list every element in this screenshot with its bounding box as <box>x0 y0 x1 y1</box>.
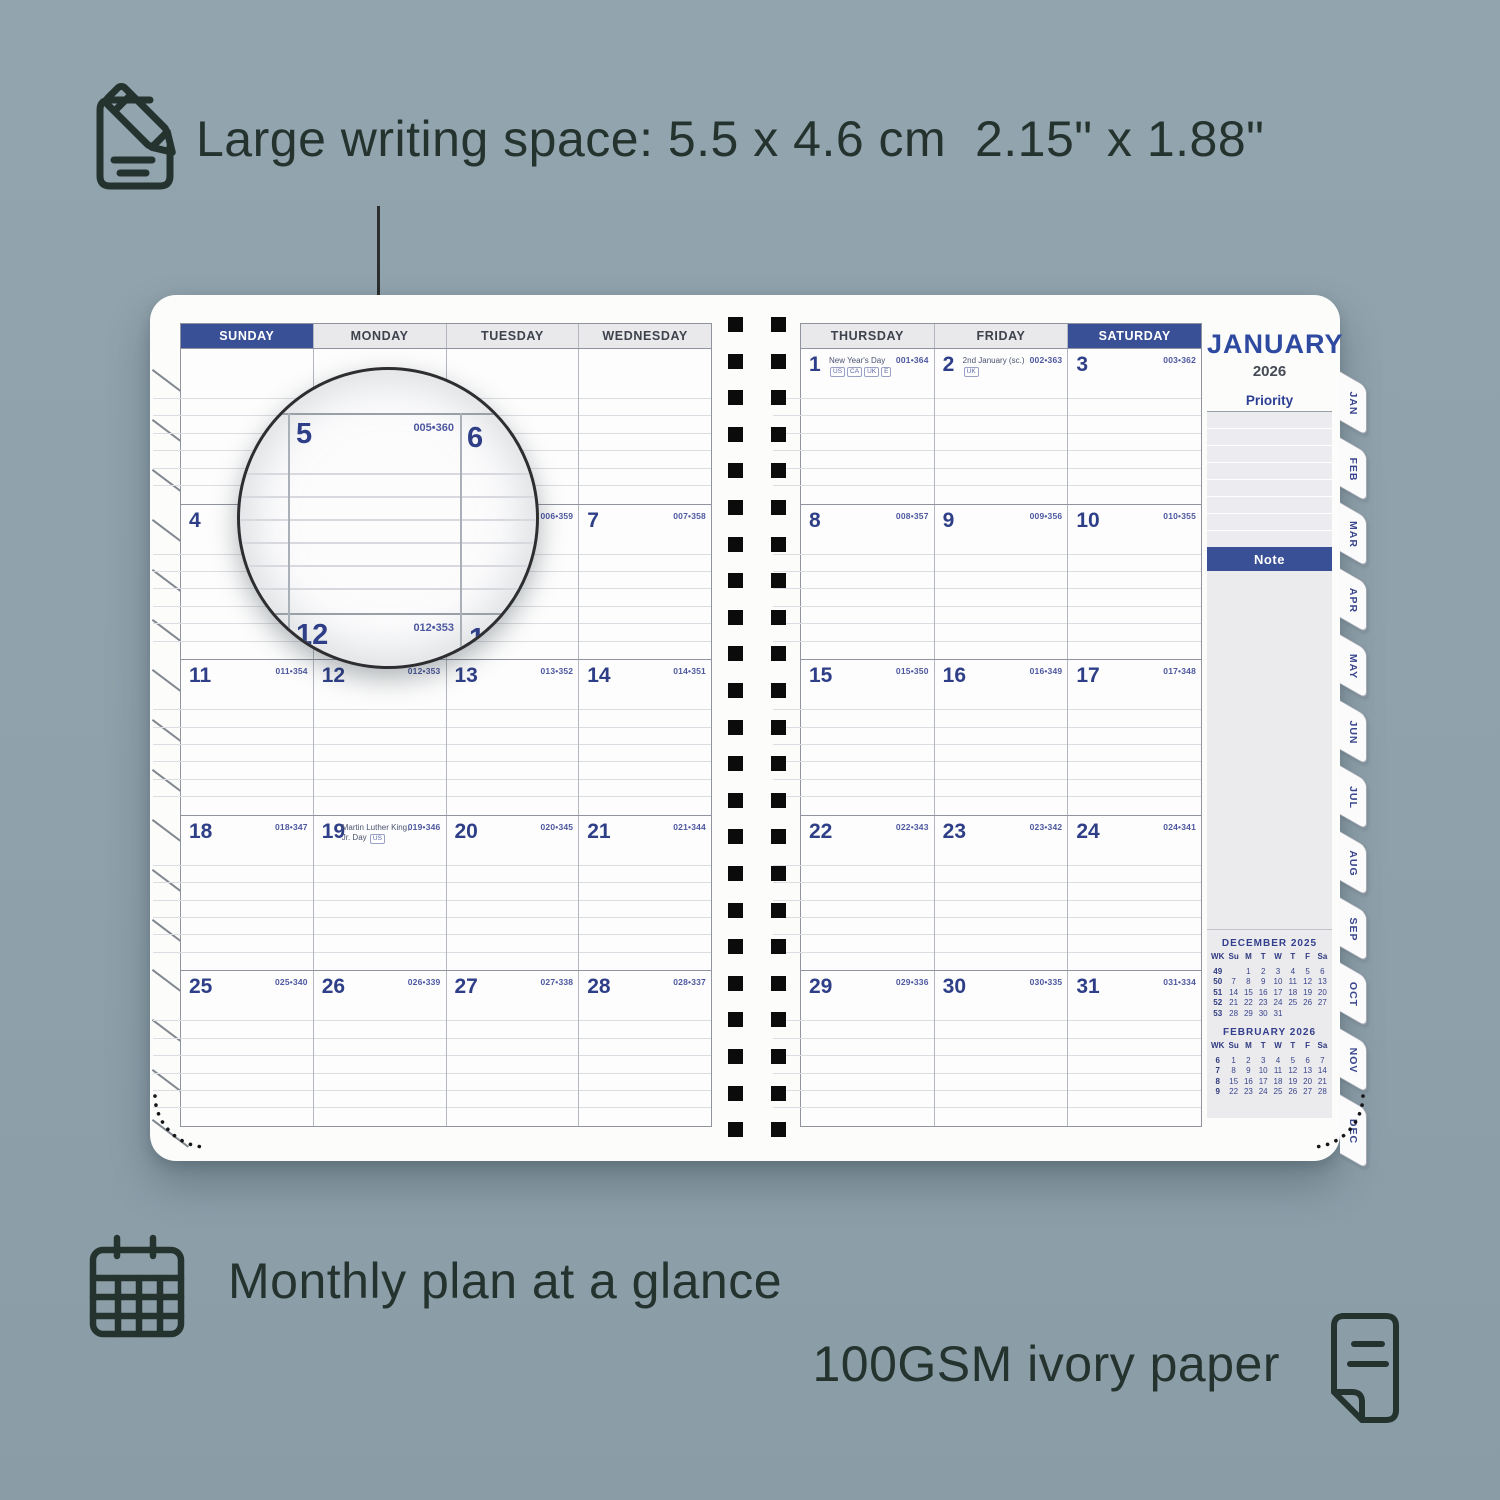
dotted-corner-left <box>150 1093 210 1153</box>
day-number: 16 <box>943 664 966 688</box>
mini-calendar-day: 25 <box>1285 998 1300 1009</box>
day-number: 14 <box>587 664 610 688</box>
binding-hole <box>771 1122 786 1137</box>
mini-calendar-day: 3 <box>1256 1056 1271 1067</box>
weekday-header-monday: MONDAY <box>313 324 446 348</box>
mini-calendars: DECEMBER 2025WKSuMTWTFSa4912345650789101… <box>1207 929 1332 1098</box>
binding-hole <box>728 537 743 552</box>
mini-calendar-day: 6 <box>1300 1056 1315 1067</box>
week-row: 8008•3579009•35610010•355 <box>801 504 1201 660</box>
day-number: 28 <box>587 975 610 999</box>
week-number: 53 <box>1209 1009 1226 1020</box>
day-number: 1 <box>809 353 821 377</box>
binding-hole <box>771 1049 786 1064</box>
mini-calendar-day: 4 <box>1271 1056 1286 1067</box>
month-tab-label: APR <box>1329 588 1377 614</box>
mini-calendar-day: 13 <box>1315 977 1330 988</box>
day-code: 027•338 <box>541 977 574 987</box>
month-tab-oct: OCT <box>1340 962 1367 1028</box>
day-cell-29: 29029•336 <box>801 971 934 1126</box>
day-code: 025•340 <box>275 977 308 987</box>
mini-calendar-day: 10 <box>1256 1066 1271 1077</box>
day-number: 25 <box>189 975 212 999</box>
binding-hole <box>728 427 743 442</box>
mini-calendar-day: 20 <box>1315 988 1330 999</box>
mini-calendar-grid: WKSuMTWTFSa49123456507891011121351141516… <box>1207 952 1332 1019</box>
mini-calendar-day <box>1315 1009 1330 1020</box>
day-cell-3: 3003•362 <box>1067 349 1201 504</box>
note-panel: DECEMBER 2025WKSuMTWTFSa4912345650789101… <box>1207 571 1332 1118</box>
magnified-code-12: 012•353 <box>370 622 454 634</box>
week-number: 51 <box>1209 988 1226 999</box>
day-code: 009•356 <box>1030 511 1063 521</box>
day-cell-17: 17017•348 <box>1067 660 1201 815</box>
day-number: 7 <box>587 509 599 533</box>
holiday-region-badge: US <box>370 834 385 844</box>
week-number: 8 <box>1209 1077 1226 1088</box>
day-cell-28: 28028•337 <box>578 971 711 1126</box>
month-tab-label: JAN <box>1329 391 1377 417</box>
magnifier-circle: 5 005•360 6 12 012•353 13 <box>237 367 539 669</box>
day-code: 020•345 <box>541 822 574 832</box>
binding-hole <box>771 1086 786 1101</box>
holiday-label: New Year's Day USCAUKE <box>829 356 903 377</box>
day-cell-20: 20020•345 <box>446 816 579 971</box>
binding-hole <box>771 903 786 918</box>
mini-calendar-day: 11 <box>1271 1066 1286 1077</box>
binding-hole <box>728 463 743 478</box>
feature-monthly-plan: Monthly plan at a glance <box>228 1252 782 1310</box>
mini-calendar-day: 28 <box>1226 1009 1241 1020</box>
day-code: 029•336 <box>896 977 929 987</box>
day-code: 031•334 <box>1163 977 1196 987</box>
mini-calendar-day: 9 <box>1256 977 1271 988</box>
binding-hole <box>728 390 743 405</box>
mini-calendar-day: 19 <box>1285 1077 1300 1088</box>
mini-calendar-weekday: Sa <box>1315 1041 1330 1052</box>
mini-calendar-day: 5 <box>1300 967 1315 978</box>
week-row: 15015•35016016•34917017•348 <box>801 659 1201 815</box>
binding-hole <box>728 793 743 808</box>
mini-calendar-day: 19 <box>1300 988 1315 999</box>
mini-calendar-day: 6 <box>1315 967 1330 978</box>
binding-hole <box>771 646 786 661</box>
day-number: 8 <box>809 509 821 533</box>
month-tab-feb: FEB <box>1340 437 1367 503</box>
mini-calendar-day <box>1285 1009 1300 1020</box>
day-cell-31: 31031•334 <box>1067 971 1201 1126</box>
day-cell-30: 30030•335 <box>934 971 1068 1126</box>
mini-calendar-day: 7 <box>1226 977 1241 988</box>
binding-hole <box>728 317 743 332</box>
week-number: 50 <box>1209 977 1226 988</box>
day-cell-16: 16016•349 <box>934 660 1068 815</box>
mini-calendar-day: 31 <box>1271 1009 1286 1020</box>
day-cell-10: 10010•355 <box>1067 505 1201 660</box>
binding-hole <box>771 610 786 625</box>
mini-calendar-weekday: F <box>1300 1041 1315 1052</box>
product-image: Large writing space: 5.5 x 4.6 cm 2.15" … <box>0 0 1500 1500</box>
right-page-grid: THURSDAYFRIDAYSATURDAY 1001•364New Year'… <box>800 323 1202 1127</box>
dotted-corner-right <box>1308 1093 1368 1153</box>
mini-calendar-weekday: T <box>1285 952 1300 963</box>
day-number: 31 <box>1076 975 1099 999</box>
mini-calendar-day: 21 <box>1226 998 1241 1009</box>
binding-hole <box>728 1086 743 1101</box>
mini-calendar-day: 4 <box>1285 967 1300 978</box>
week-row: 25025•34026026•33927027•33828028•337 <box>181 970 711 1126</box>
mini-calendar-day: 18 <box>1271 1077 1286 1088</box>
month-tab-label: MAR <box>1329 522 1377 548</box>
binding-hole <box>771 463 786 478</box>
weekday-header-tuesday: TUESDAY <box>446 324 579 348</box>
mini-calendar-day: 3 <box>1271 967 1286 978</box>
mini-calendar-day: 26 <box>1300 998 1315 1009</box>
mini-calendar-day: 2 <box>1256 967 1271 978</box>
day-number: 13 <box>455 664 478 688</box>
month-tab-jul: JUL <box>1340 765 1367 831</box>
binding-hole <box>728 573 743 588</box>
day-cell-14: 14014•351 <box>578 660 711 815</box>
weekday-header-row: SUNDAYMONDAYTUESDAYWEDNESDAY <box>181 324 711 349</box>
weekday-header-wednesday: WEDNESDAY <box>578 324 711 348</box>
mini-calendar-day <box>1226 967 1241 978</box>
month-tab-label: NOV <box>1329 1048 1377 1074</box>
mini-calendar-weekday: M <box>1241 952 1256 963</box>
binding-hole <box>728 1122 743 1137</box>
month-tab-nov: NOV <box>1340 1028 1367 1094</box>
binding-hole <box>728 903 743 918</box>
mini-calendar-weekday: F <box>1300 952 1315 963</box>
week-number: 49 <box>1209 967 1226 978</box>
mini-calendar-day: 20 <box>1300 1077 1315 1088</box>
mini-calendar-day <box>1300 1009 1315 1020</box>
day-code: 017•348 <box>1163 666 1196 676</box>
mini-calendar-day: 15 <box>1241 988 1256 999</box>
day-code: 008•357 <box>896 511 929 521</box>
day-number: 4 <box>189 509 201 533</box>
binding-hole <box>771 756 786 771</box>
week-row: 22022•34323023•34224024•341 <box>801 815 1201 971</box>
day-cell-27: 27027•338 <box>446 971 579 1126</box>
day-number: 23 <box>943 820 966 844</box>
month-tab-label: JUL <box>1329 785 1377 811</box>
month-tab-mar: MAR <box>1340 502 1367 568</box>
calendar-grid-icon <box>85 1232 189 1338</box>
day-code: 015•350 <box>896 666 929 676</box>
day-number: 15 <box>809 664 832 688</box>
feature-paper: 100GSM ivory paper <box>700 1335 1280 1393</box>
mini-calendar-day: 24 <box>1271 998 1286 1009</box>
day-cell-7: 7007•358 <box>578 505 711 660</box>
mini-calendar-title: DECEMBER 2025 <box>1207 938 1332 949</box>
note-heading: Note <box>1207 547 1332 571</box>
holiday-label: 2nd January (sc.) UK <box>963 356 1037 377</box>
day-code: 010•355 <box>1163 511 1196 521</box>
binding-hole <box>771 500 786 515</box>
binding-hole <box>771 939 786 954</box>
mini-calendar-day: 24 <box>1256 1087 1271 1098</box>
day-code: 021•344 <box>673 822 706 832</box>
mini-calendar-weekday: T <box>1256 952 1271 963</box>
day-cell-23: 23023•342 <box>934 816 1068 971</box>
binding-hole <box>728 500 743 515</box>
day-code: 018•347 <box>275 822 308 832</box>
day-code: 024•341 <box>1163 822 1196 832</box>
magnified-day-5: 5 <box>296 418 312 451</box>
mini-calendar-weekday: Sa <box>1315 952 1330 963</box>
day-cell-1: 1001•364New Year's Day USCAUKE <box>801 349 934 504</box>
holiday-region-badge: US <box>830 367 845 377</box>
day-cell-26: 26026•339 <box>313 971 446 1126</box>
mini-calendar-day: 23 <box>1241 1087 1256 1098</box>
day-code: 013•352 <box>541 666 574 676</box>
week-row: 18018•34719019•346Martin Luther King, Jr… <box>181 815 711 971</box>
binding-hole <box>728 866 743 881</box>
mini-calendar-day: 8 <box>1241 977 1256 988</box>
binding-hole <box>728 610 743 625</box>
day-number: 9 <box>943 509 955 533</box>
binding-hole <box>728 683 743 698</box>
binding-hole <box>728 976 743 991</box>
mini-calendar-day: 30 <box>1256 1009 1271 1020</box>
mini-calendar-weekday: M <box>1241 1041 1256 1052</box>
paper-sheet-icon <box>1320 1308 1410 1428</box>
binding-hole <box>771 720 786 735</box>
day-cell-11: 11011•354 <box>181 660 313 815</box>
mini-calendar-weekday: WK <box>1209 952 1226 963</box>
day-number: 17 <box>1076 664 1099 688</box>
day-code: 006•359 <box>541 511 574 521</box>
weekday-header-friday: FRIDAY <box>934 324 1068 348</box>
mini-calendar-day: 10 <box>1271 977 1286 988</box>
holiday-label: Martin Luther King, Jr. Day US <box>342 823 416 844</box>
day-cell-15: 15015•350 <box>801 660 934 815</box>
binding-hole <box>771 573 786 588</box>
day-number: 22 <box>809 820 832 844</box>
mini-calendar-day: 14 <box>1226 988 1241 999</box>
mini-calendar-day: 16 <box>1241 1077 1256 1088</box>
week-number: 7 <box>1209 1066 1226 1077</box>
holiday-region-badge: UK <box>864 367 879 377</box>
month-title: JANUARY <box>1207 329 1332 360</box>
mini-calendar-weekday: Su <box>1226 952 1241 963</box>
day-code: 022•343 <box>896 822 929 832</box>
month-tab-label: AUG <box>1329 850 1377 876</box>
binding-hole <box>771 354 786 369</box>
mini-calendar-day: 22 <box>1241 998 1256 1009</box>
day-number: 24 <box>1076 820 1099 844</box>
magnified-day-6: 6 <box>467 422 483 455</box>
binding-hole <box>771 829 786 844</box>
holiday-region-badge: UK <box>964 367 979 377</box>
magnified-day-12: 12 <box>296 619 328 652</box>
weekday-header-thursday: THURSDAY <box>801 324 934 348</box>
day-number: 18 <box>189 820 212 844</box>
binding-hole <box>728 354 743 369</box>
mini-calendar-day: 21 <box>1315 1077 1330 1088</box>
week-number: 52 <box>1209 998 1226 1009</box>
binding-hole <box>728 720 743 735</box>
day-cell-empty <box>578 349 711 504</box>
mini-calendar-day: 7 <box>1315 1056 1330 1067</box>
day-number: 11 <box>189 664 211 688</box>
week-number: 6 <box>1209 1056 1226 1067</box>
day-cell-24: 24024•341 <box>1067 816 1201 971</box>
day-number: 21 <box>587 820 610 844</box>
mini-calendar-day: 1 <box>1241 967 1256 978</box>
mini-calendar-day: 5 <box>1285 1056 1300 1067</box>
mini-calendar-day: 11 <box>1285 977 1300 988</box>
month-tab-sep: SEP <box>1340 897 1367 963</box>
day-number: 27 <box>455 975 478 999</box>
mini-calendar-day: 8 <box>1226 1066 1241 1077</box>
day-number: 12 <box>322 664 345 688</box>
day-cell-12: 12012•353 <box>313 660 446 815</box>
day-code: 026•339 <box>408 977 441 987</box>
priority-heading: Priority <box>1207 393 1332 408</box>
mini-calendar-day: 15 <box>1226 1077 1241 1088</box>
mini-calendar-weekday: T <box>1256 1041 1271 1052</box>
holiday-region-badge: E <box>881 367 891 377</box>
day-cell-22: 22022•343 <box>801 816 934 971</box>
mini-calendar-day: 13 <box>1300 1066 1315 1077</box>
day-code: 003•362 <box>1163 355 1196 365</box>
month-tab-aug: AUG <box>1340 831 1367 897</box>
mini-calendar-day: 23 <box>1256 998 1271 1009</box>
day-cell-8: 8008•357 <box>801 505 934 660</box>
mini-calendar-weekday: Su <box>1226 1041 1241 1052</box>
mini-calendar-title: FEBRUARY 2026 <box>1207 1027 1332 1038</box>
day-cell-2: 2002•3632nd January (sc.) UK <box>934 349 1068 504</box>
day-code: 028•337 <box>673 977 706 987</box>
day-number: 20 <box>455 820 478 844</box>
mini-calendar-weekday: W <box>1271 952 1286 963</box>
binding-hole <box>728 646 743 661</box>
binding-hole <box>728 1049 743 1064</box>
day-number: 26 <box>322 975 345 999</box>
weekday-header-sunday: SUNDAY <box>181 324 313 348</box>
month-tab-label: MAY <box>1329 653 1377 679</box>
month-tab-jan: JAN <box>1340 371 1367 437</box>
weekday-header-row: THURSDAYFRIDAYSATURDAY <box>801 324 1201 349</box>
day-cell-18: 18018•347 <box>181 816 313 971</box>
binding-hole <box>728 829 743 844</box>
mini-calendar-day: 14 <box>1315 1066 1330 1077</box>
day-code: 011•354 <box>275 666 307 676</box>
week-row: 1001•364New Year's Day USCAUKE2002•3632n… <box>801 349 1201 504</box>
week-number: 9 <box>1209 1087 1226 1098</box>
month-tab-may: MAY <box>1340 634 1367 700</box>
magnified-code-5: 005•360 <box>370 422 454 434</box>
mini-calendar-day: 17 <box>1271 988 1286 999</box>
binding-hole <box>771 793 786 808</box>
binding-hole <box>771 866 786 881</box>
day-code: 023•342 <box>1030 822 1063 832</box>
day-number: 2 <box>943 353 955 377</box>
mini-calendar-day: 1 <box>1226 1056 1241 1067</box>
month-tab-label: JUN <box>1329 719 1377 745</box>
day-number: 10 <box>1076 509 1099 533</box>
mini-calendar-day: 12 <box>1300 977 1315 988</box>
day-cell-19: 19019•346Martin Luther King, Jr. Day US <box>313 816 446 971</box>
mini-calendar-weekday: W <box>1271 1041 1286 1052</box>
day-code: 012•353 <box>408 666 441 676</box>
day-cell-21: 21021•344 <box>578 816 711 971</box>
day-code: 030•335 <box>1030 977 1063 987</box>
mini-calendar-day: 17 <box>1256 1077 1271 1088</box>
mini-calendar-day: 2 <box>1241 1056 1256 1067</box>
week-row: 11011•35412012•35313013•35214014•351 <box>181 659 711 815</box>
mini-calendar-day: 18 <box>1285 988 1300 999</box>
binding-hole <box>728 1012 743 1027</box>
planner-sidebar: JANUARY 2026 Priority Note DECEMBER 2025… <box>1207 323 1332 1120</box>
priority-lines <box>1207 411 1332 548</box>
mini-calendar-day: 25 <box>1271 1087 1286 1098</box>
month-tab-label: FEB <box>1329 456 1377 482</box>
day-cell-9: 9009•356 <box>934 505 1068 660</box>
month-tab-label: OCT <box>1329 982 1377 1008</box>
binding-hole <box>771 683 786 698</box>
mini-calendar-day: 12 <box>1285 1066 1300 1077</box>
year-title: 2026 <box>1207 363 1332 380</box>
day-code: 016•349 <box>1030 666 1063 676</box>
magnified-day-13: 13 <box>469 623 501 656</box>
day-number: 3 <box>1076 353 1088 377</box>
day-cell-13: 13013•352 <box>446 660 579 815</box>
week-row: 29029•33630030•33531031•334 <box>801 970 1201 1126</box>
binding-hole <box>771 976 786 991</box>
binding-hole <box>728 756 743 771</box>
mini-calendar-day: 16 <box>1256 988 1271 999</box>
month-tab-label: SEP <box>1329 916 1377 942</box>
mini-calendar-grid: WKSuMTWTFSa61234567789101112131481516171… <box>1207 1041 1332 1098</box>
day-number: 29 <box>809 975 832 999</box>
binding-hole <box>771 537 786 552</box>
feature-writing-space: Large writing space: 5.5 x 4.6 cm 2.15" … <box>196 110 1264 168</box>
mini-calendar-day: 9 <box>1241 1066 1256 1077</box>
mini-calendar-day: 29 <box>1241 1009 1256 1020</box>
notepad-pencil-icon <box>86 78 186 192</box>
month-tab-apr: APR <box>1340 568 1367 634</box>
binding-hole <box>771 317 786 332</box>
day-code: 007•358 <box>673 511 706 521</box>
binding-hole <box>771 427 786 442</box>
weekday-header-saturday: SATURDAY <box>1067 324 1201 348</box>
day-number: 30 <box>943 975 966 999</box>
mini-calendar-weekday: T <box>1285 1041 1300 1052</box>
month-tab-jun: JUN <box>1340 700 1367 766</box>
mini-calendar-weekday: WK <box>1209 1041 1226 1052</box>
binding-hole <box>771 390 786 405</box>
mini-calendar-day: 26 <box>1285 1087 1300 1098</box>
binding-hole <box>728 939 743 954</box>
binding-hole <box>771 1012 786 1027</box>
mini-calendar-day: 22 <box>1226 1087 1241 1098</box>
holiday-region-badge: CA <box>847 367 862 377</box>
mini-calendar-day: 27 <box>1315 998 1330 1009</box>
day-code: 014•351 <box>673 666 706 676</box>
